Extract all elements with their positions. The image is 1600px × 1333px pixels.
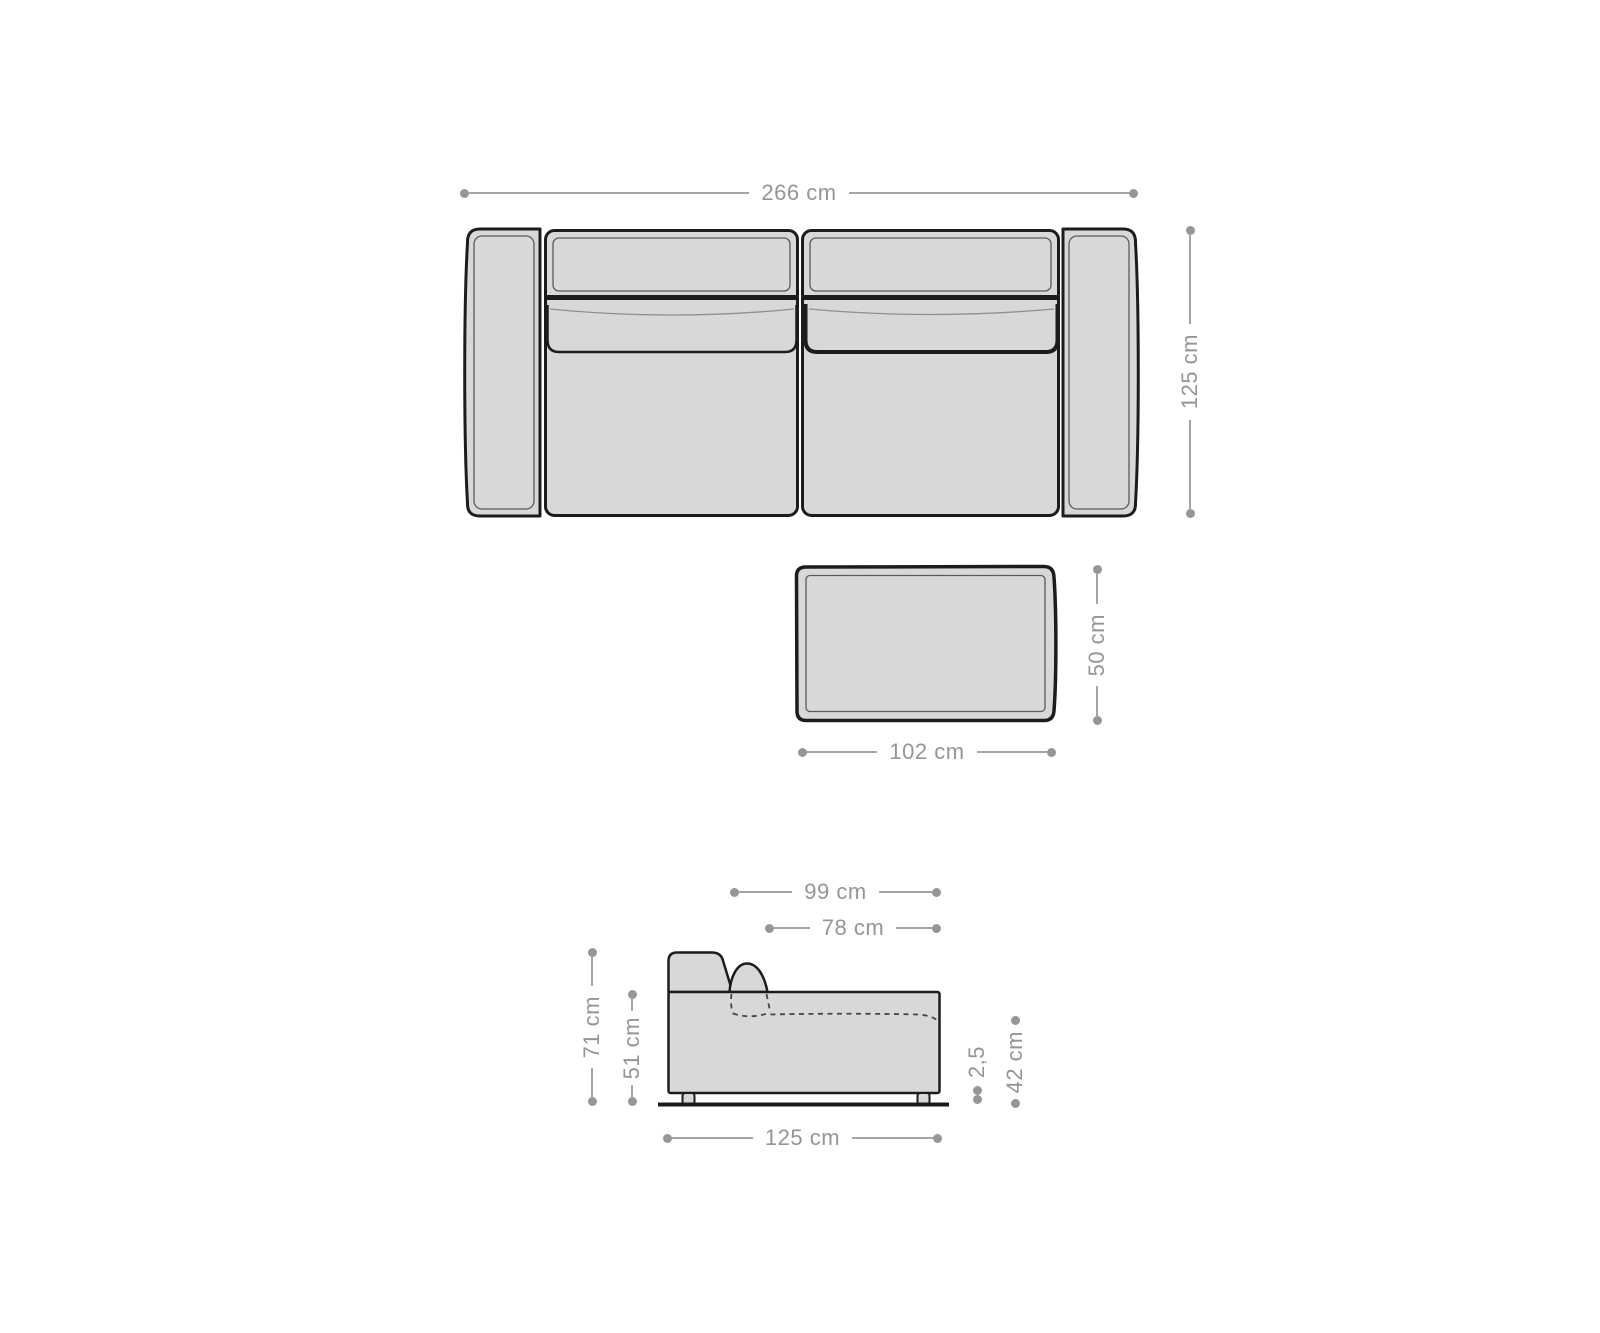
sofa-top-right-armrest (1063, 229, 1138, 516)
dimension-line (672, 1137, 753, 1139)
dimension-endpoint-dot (1047, 748, 1056, 757)
side-depth-total-label: 99 cm (792, 881, 878, 903)
side-bolster-pillow (730, 964, 768, 993)
dimension-endpoint-dot (932, 888, 941, 897)
dimension-line (807, 751, 877, 753)
table-top-view-drawing (797, 567, 1056, 721)
side-depth-base-label: 125 cm (753, 1127, 852, 1149)
sofa-depth-label: 125 cm (1179, 324, 1201, 419)
dimension-line (849, 192, 1129, 194)
dimension-line (774, 927, 810, 929)
dimension-side-height-body: 51 cm (618, 990, 646, 1106)
dimension-endpoint-dot (1011, 1016, 1020, 1025)
dimension-line (591, 957, 593, 986)
dimension-line (1189, 420, 1191, 509)
dimension-endpoint-dot (730, 888, 739, 897)
dimension-side-height-total: 71 cm (578, 948, 606, 1106)
dimension-line (879, 891, 932, 893)
dimension-line (631, 1085, 633, 1097)
dimension-endpoint-dot (765, 924, 774, 933)
table-depth-label: 50 cm (1086, 604, 1108, 686)
dimension-endpoint-dot (1129, 189, 1138, 198)
dimension-line (469, 192, 749, 194)
dimension-endpoint-dot (628, 990, 637, 999)
dimension-endpoint-dot (1011, 1099, 1020, 1108)
dimension-endpoint-dot (973, 1095, 982, 1104)
dimension-line (631, 999, 633, 1011)
dimension-table-depth: 50 cm (1083, 565, 1111, 725)
table-width-label: 102 cm (877, 741, 976, 763)
dimension-endpoint-dot (1093, 565, 1102, 574)
dimension-endpoint-dot (628, 1097, 637, 1106)
dimension-line (739, 891, 792, 893)
side-seat-height-label: 42 cm (1004, 1025, 1026, 1099)
table-top-outline (797, 567, 1056, 721)
dimension-endpoint-dot (1186, 226, 1195, 235)
dimension-endpoint-dot (933, 1134, 942, 1143)
side-height-total-label: 71 cm (581, 986, 603, 1068)
dimension-side-depth-base: 125 cm (663, 1126, 942, 1150)
dimension-endpoint-dot (932, 924, 941, 933)
sofa-top-left-armrest (465, 229, 540, 516)
dimension-side-depth-total: 99 cm (730, 880, 941, 904)
dimension-line (1189, 235, 1191, 324)
dimension-sofa-depth: 125 cm (1176, 226, 1204, 518)
dimension-line (1096, 574, 1098, 604)
dimension-sheet: 266 cm 125 cm 50 cm 102 cm 99 cm 78 cm (0, 0, 1600, 1333)
side-back-cushion (669, 953, 733, 993)
sofa-top-right-module (803, 231, 1059, 516)
dimension-endpoint-dot (973, 1086, 982, 1095)
sofa-side-view-drawing (658, 953, 949, 1105)
side-body (669, 992, 940, 1093)
dimension-side-seat-height: 42 cm (1001, 1016, 1029, 1108)
dimension-line (591, 1068, 593, 1097)
dimension-endpoint-dot (1186, 509, 1195, 518)
dimension-endpoint-dot (798, 748, 807, 757)
dimension-table-width: 102 cm (798, 740, 1056, 764)
side-height-body-label: 51 cm (621, 1011, 643, 1085)
side-leg-height-label: 2,5 (966, 1046, 988, 1078)
dimension-line (1096, 686, 1098, 716)
sofa-width-label: 266 cm (749, 182, 848, 204)
side-depth-seat-label: 78 cm (810, 917, 896, 939)
dimension-side-depth-seat: 78 cm (765, 916, 941, 940)
dimension-line (977, 751, 1047, 753)
dimension-endpoint-dot (1093, 716, 1102, 725)
dimension-endpoint-dot (588, 948, 597, 957)
dimension-endpoint-dot (588, 1097, 597, 1106)
dimension-side-leg-height: 2,5 (963, 1046, 991, 1104)
sofa-top-left-module (546, 231, 798, 516)
sofa-top-view-drawing (465, 229, 1139, 516)
dimension-sofa-width: 266 cm (460, 181, 1138, 205)
dimension-line (896, 927, 932, 929)
dimension-endpoint-dot (663, 1134, 672, 1143)
dimension-line (852, 1137, 933, 1139)
dimension-endpoint-dot (460, 189, 469, 198)
